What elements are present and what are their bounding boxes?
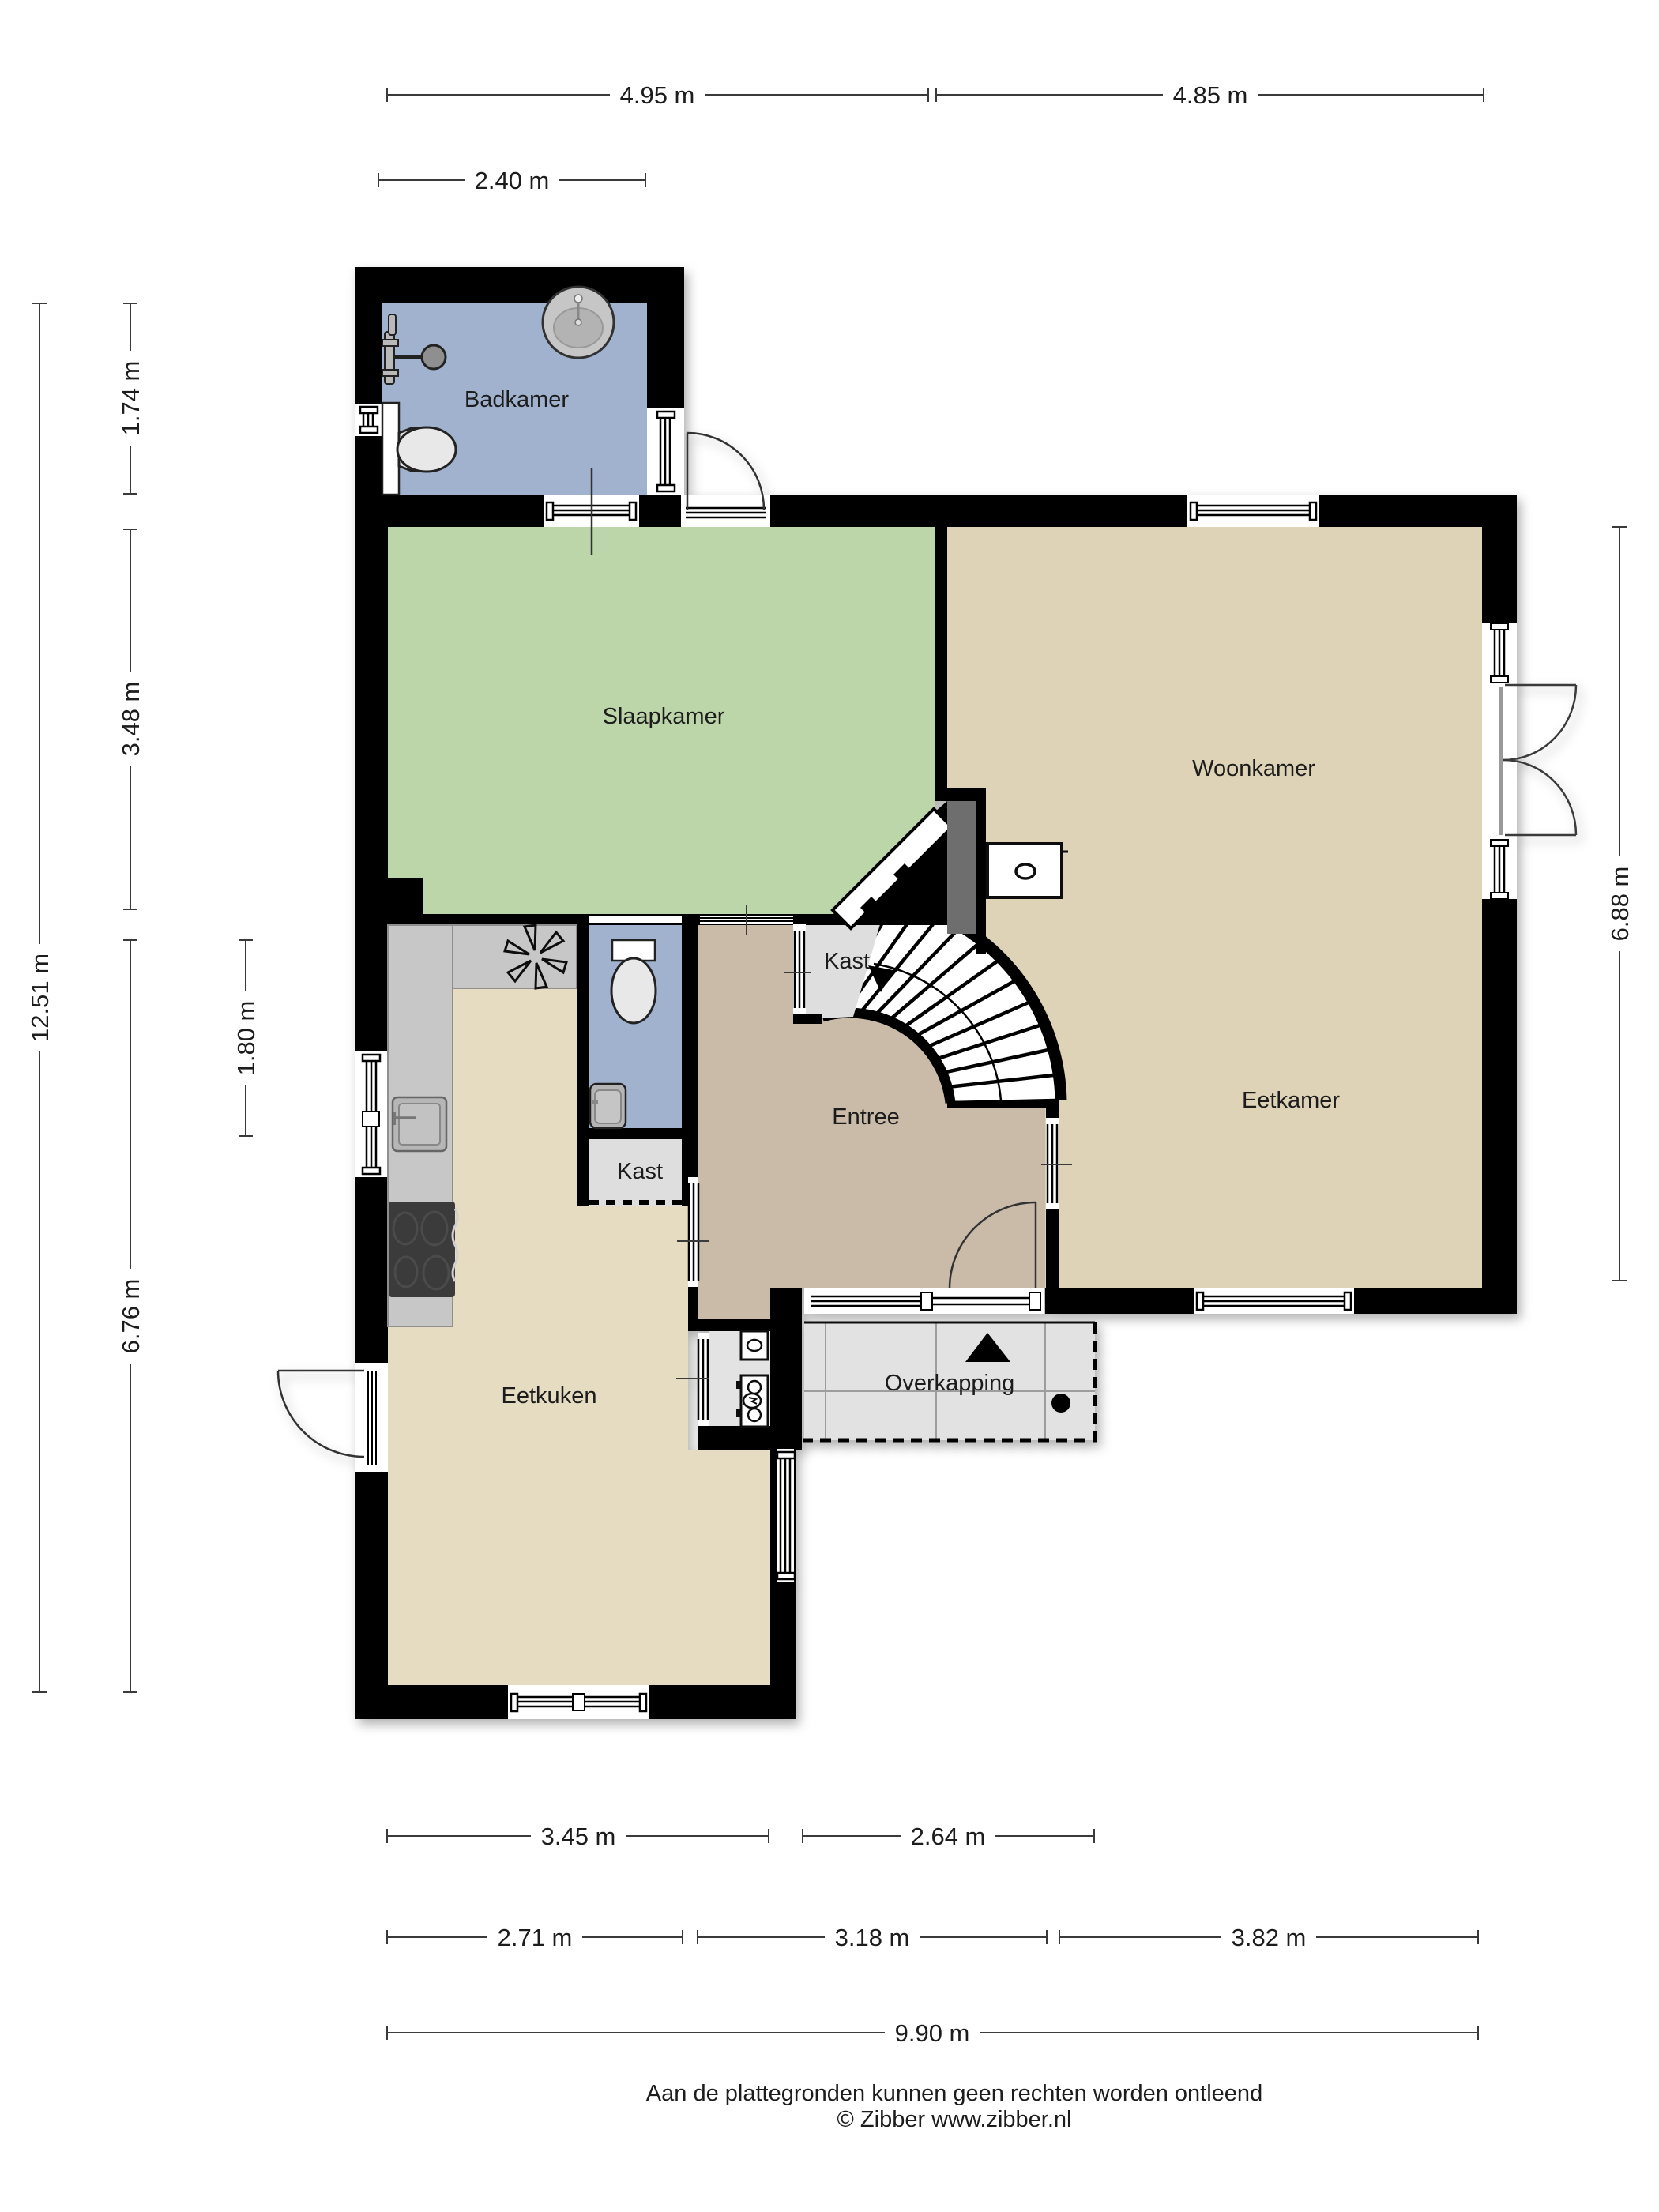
svg-text:6.76 m: 6.76 m bbox=[117, 1279, 145, 1354]
svg-text:4.95 m: 4.95 m bbox=[620, 81, 695, 109]
svg-text:4.85 m: 4.85 m bbox=[1173, 81, 1248, 109]
svg-text:2.40 m: 2.40 m bbox=[475, 167, 550, 194]
svg-text:Overkapping: Overkapping bbox=[885, 1371, 1014, 1396]
svg-text:Eetkamer: Eetkamer bbox=[1242, 1088, 1340, 1113]
svg-text:9.90 m: 9.90 m bbox=[895, 2019, 970, 2047]
svg-text:1.80 m: 1.80 m bbox=[232, 1001, 260, 1076]
svg-text:3.48 m: 3.48 m bbox=[117, 682, 145, 757]
svg-text:3.18 m: 3.18 m bbox=[835, 1924, 910, 1951]
svg-text:3.82 m: 3.82 m bbox=[1232, 1924, 1307, 1951]
svg-text:Kast: Kast bbox=[824, 949, 870, 974]
svg-text:12.51 m: 12.51 m bbox=[26, 954, 54, 1042]
svg-text:Kast: Kast bbox=[617, 1159, 663, 1184]
svg-text:3.45 m: 3.45 m bbox=[541, 1823, 616, 1850]
svg-text:2.71 m: 2.71 m bbox=[498, 1924, 573, 1951]
svg-text:Entree: Entree bbox=[832, 1104, 899, 1130]
svg-text:Badkamer: Badkamer bbox=[465, 387, 570, 412]
svg-text:© Zibber www.zibber.nl: © Zibber www.zibber.nl bbox=[837, 2107, 1072, 2132]
svg-text:1.74 m: 1.74 m bbox=[117, 361, 145, 436]
svg-text:Woonkamer: Woonkamer bbox=[1192, 756, 1315, 781]
svg-text:2.64 m: 2.64 m bbox=[911, 1823, 986, 1850]
svg-text:Eetkuken: Eetkuken bbox=[502, 1383, 597, 1409]
svg-text:6.88 m: 6.88 m bbox=[1606, 867, 1634, 942]
svg-text:Aan de plattegronden kunnen ge: Aan de plattegronden kunnen geen rechten… bbox=[646, 2081, 1262, 2106]
svg-text:Slaapkamer: Slaapkamer bbox=[603, 704, 725, 729]
